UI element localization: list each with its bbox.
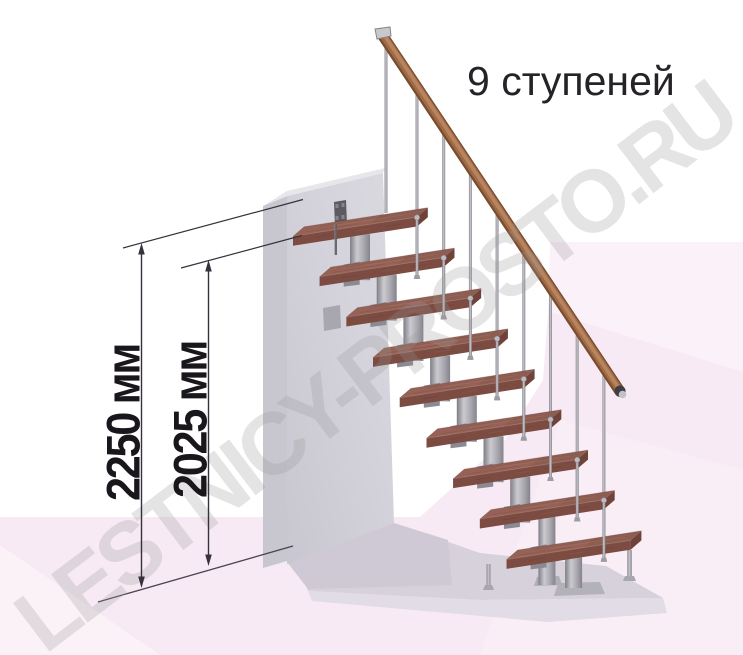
svg-text:2025 мм: 2025 мм — [164, 342, 217, 498]
svg-text:9 ступеней: 9 ступеней — [467, 58, 675, 104]
svg-text:2250 мм: 2250 мм — [97, 345, 150, 501]
